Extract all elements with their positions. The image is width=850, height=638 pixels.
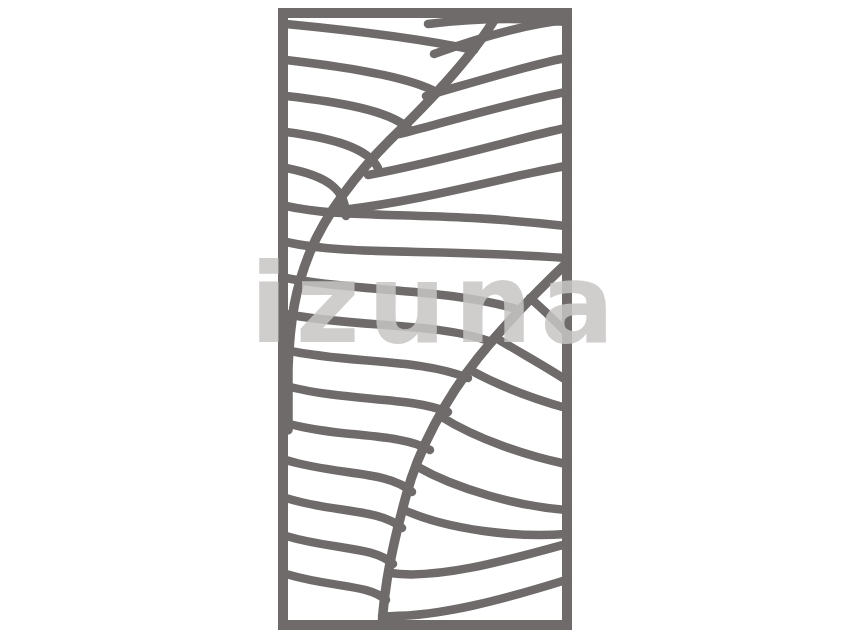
vein xyxy=(530,298,566,332)
vein xyxy=(416,466,566,510)
vein xyxy=(382,580,566,616)
vein xyxy=(286,574,386,600)
vein xyxy=(286,350,468,378)
vein xyxy=(286,242,566,258)
vein xyxy=(496,338,566,380)
vein xyxy=(286,536,393,564)
vein xyxy=(390,544,566,574)
vein xyxy=(286,498,402,528)
canvas: izuna xyxy=(0,0,850,638)
vein xyxy=(286,60,436,92)
vein xyxy=(440,416,566,464)
vein xyxy=(286,386,448,412)
vein xyxy=(286,278,520,310)
panel-pattern-graphic xyxy=(278,8,572,630)
decorative-panel-image xyxy=(278,8,572,630)
vein xyxy=(286,423,430,450)
vein xyxy=(404,510,566,535)
vein xyxy=(286,460,412,492)
vein xyxy=(286,96,408,128)
vein xyxy=(286,314,492,342)
